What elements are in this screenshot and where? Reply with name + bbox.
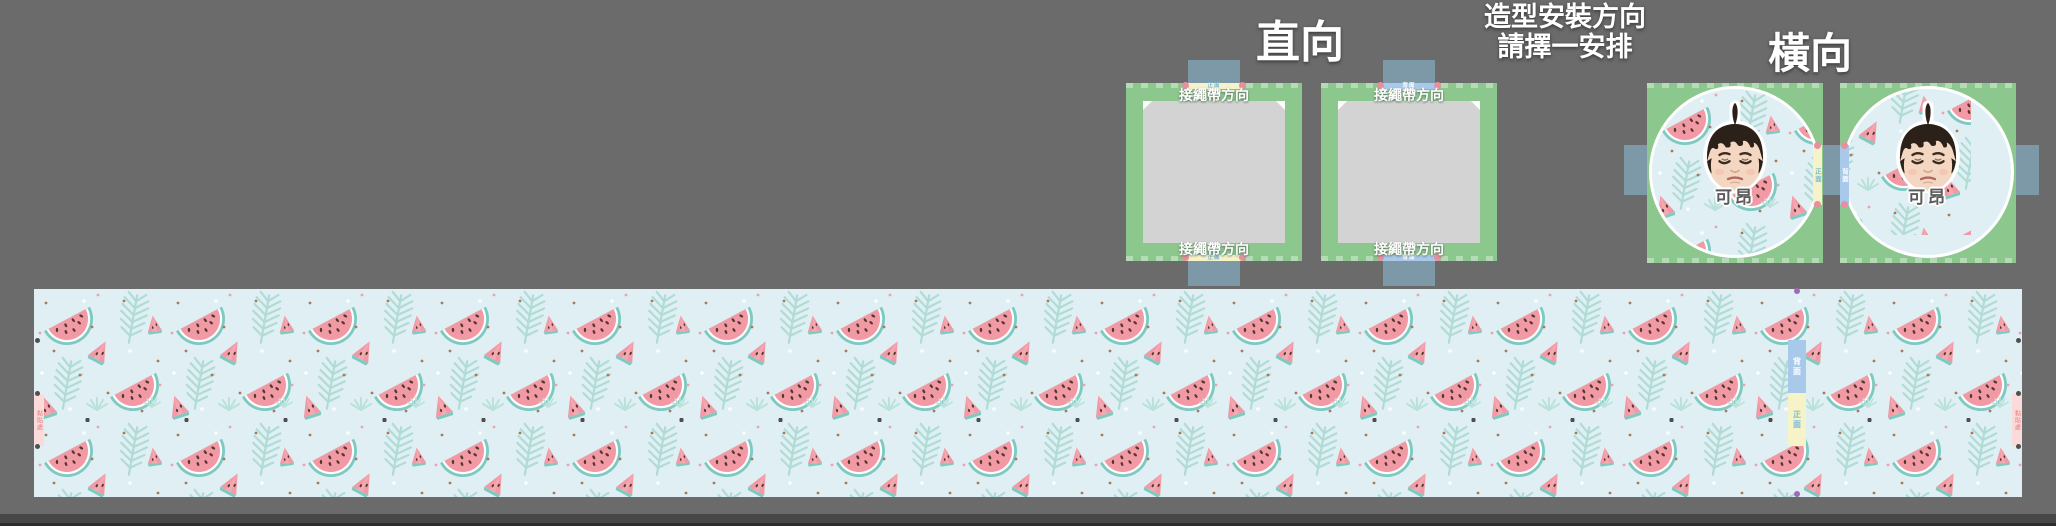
photo-placeholder[interactable]: [1338, 101, 1480, 243]
window-bottom-edge: [0, 514, 2056, 526]
fold-alignment-dot: [1794, 288, 1800, 294]
front-fold-marker: 正面: [1788, 393, 1806, 446]
watermelon-pattern: [34, 289, 2022, 497]
fold-alignment-dot: [1794, 491, 1800, 497]
installation-instruction: 造型安裝方向 請擇一安排: [1428, 3, 1702, 63]
registration-dot: [2016, 338, 2021, 343]
strap-tab-landscape-right: [2016, 145, 2039, 195]
glue-label: 黏貼處: [35, 410, 44, 431]
fold-divider: 背面 正面: [1788, 340, 1806, 446]
topper-design-circle[interactable]: 可昂: [1842, 86, 2014, 258]
landscape-card-back[interactable]: 可昂 背面: [1840, 83, 2016, 263]
glue-label: 黏貼處: [2013, 410, 2022, 431]
design-canvas: 直向 造型安裝方向 請擇一安排 橫向 正面 正面 接繩帶方向 接繩帶方向: [0, 0, 2056, 526]
back-marker-label: 背面: [1840, 168, 1850, 183]
perforation-edge: [1647, 258, 1823, 263]
back-marker-label: 背面: [1792, 357, 1803, 377]
strap-tab-portrait-back-top: [1383, 60, 1435, 84]
glue-area-left: 黏貼處: [34, 394, 44, 446]
instruction-line-1: 造型安裝方向: [1428, 3, 1702, 33]
registration-dot: [35, 391, 40, 396]
strap-tab-portrait-front-bottom: [1188, 261, 1240, 286]
strap-tab-portrait-front-top: [1188, 60, 1240, 84]
registration-dot-row: [34, 417, 2022, 423]
strap-direction-label: 接繩帶方向: [1126, 239, 1302, 259]
strap-direction-label: 接繩帶方向: [1321, 239, 1497, 259]
portrait-card-front[interactable]: 正面 正面 接繩帶方向 接繩帶方向: [1126, 83, 1302, 261]
name-label: 可昂: [1652, 183, 1818, 208]
marker-dot: [1841, 142, 1848, 149]
marker-dot: [1814, 142, 1821, 149]
registration-dot: [2016, 444, 2021, 449]
marker-dot: [1841, 201, 1848, 208]
registration-dot: [35, 338, 40, 343]
front-marker-label: 正面: [1813, 168, 1823, 183]
back-marker-strip-vertical: 背面: [1840, 145, 1849, 205]
registration-dot: [2016, 391, 2021, 396]
front-marker-strip-vertical: 正面: [1813, 145, 1822, 205]
strap-direction-label: 接繩帶方向: [1126, 85, 1302, 105]
glue-area-right: 黏貼處: [2012, 394, 2022, 446]
front-marker-label: 正面: [1792, 410, 1803, 430]
strap-direction-label: 接繩帶方向: [1321, 85, 1497, 105]
name-label: 可昂: [1845, 183, 2011, 208]
registration-dot: [35, 444, 40, 449]
photo-placeholder[interactable]: [1143, 101, 1285, 243]
portrait-card-back[interactable]: 背面 背面 接繩帶方向 接繩帶方向: [1321, 83, 1497, 261]
wrap-band-design[interactable]: 背面 正面 黏貼處 黏貼處: [34, 289, 2022, 497]
strap-tab-portrait-back-bottom: [1383, 261, 1435, 286]
landscape-section-title: 橫向: [1710, 20, 1910, 81]
landscape-card-front[interactable]: 可昂 正面: [1647, 83, 1823, 263]
marker-dot: [1814, 201, 1821, 208]
instruction-line-2: 請擇一安排: [1428, 33, 1702, 63]
back-fold-marker: 背面: [1788, 340, 1806, 393]
topper-design-circle[interactable]: 可昂: [1649, 86, 1821, 258]
perforation-edge: [1840, 258, 2016, 263]
strap-tab-landscape-left: [1624, 145, 1647, 195]
